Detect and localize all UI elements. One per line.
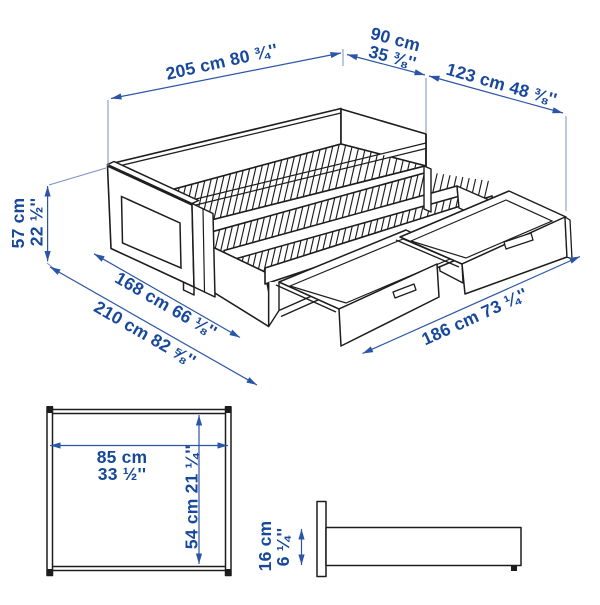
svg-text:54 cm 21 ¼'': 54 cm 21 ¼'' (182, 445, 202, 549)
svg-text:6 ¼'': 6 ¼'' (273, 528, 293, 567)
svg-text:57 cm: 57 cm (8, 198, 28, 249)
svg-text:33 ½'': 33 ½'' (98, 464, 146, 484)
svg-text:16 cm: 16 cm (255, 521, 275, 572)
svg-text:22 ½'': 22 ½'' (27, 198, 47, 246)
